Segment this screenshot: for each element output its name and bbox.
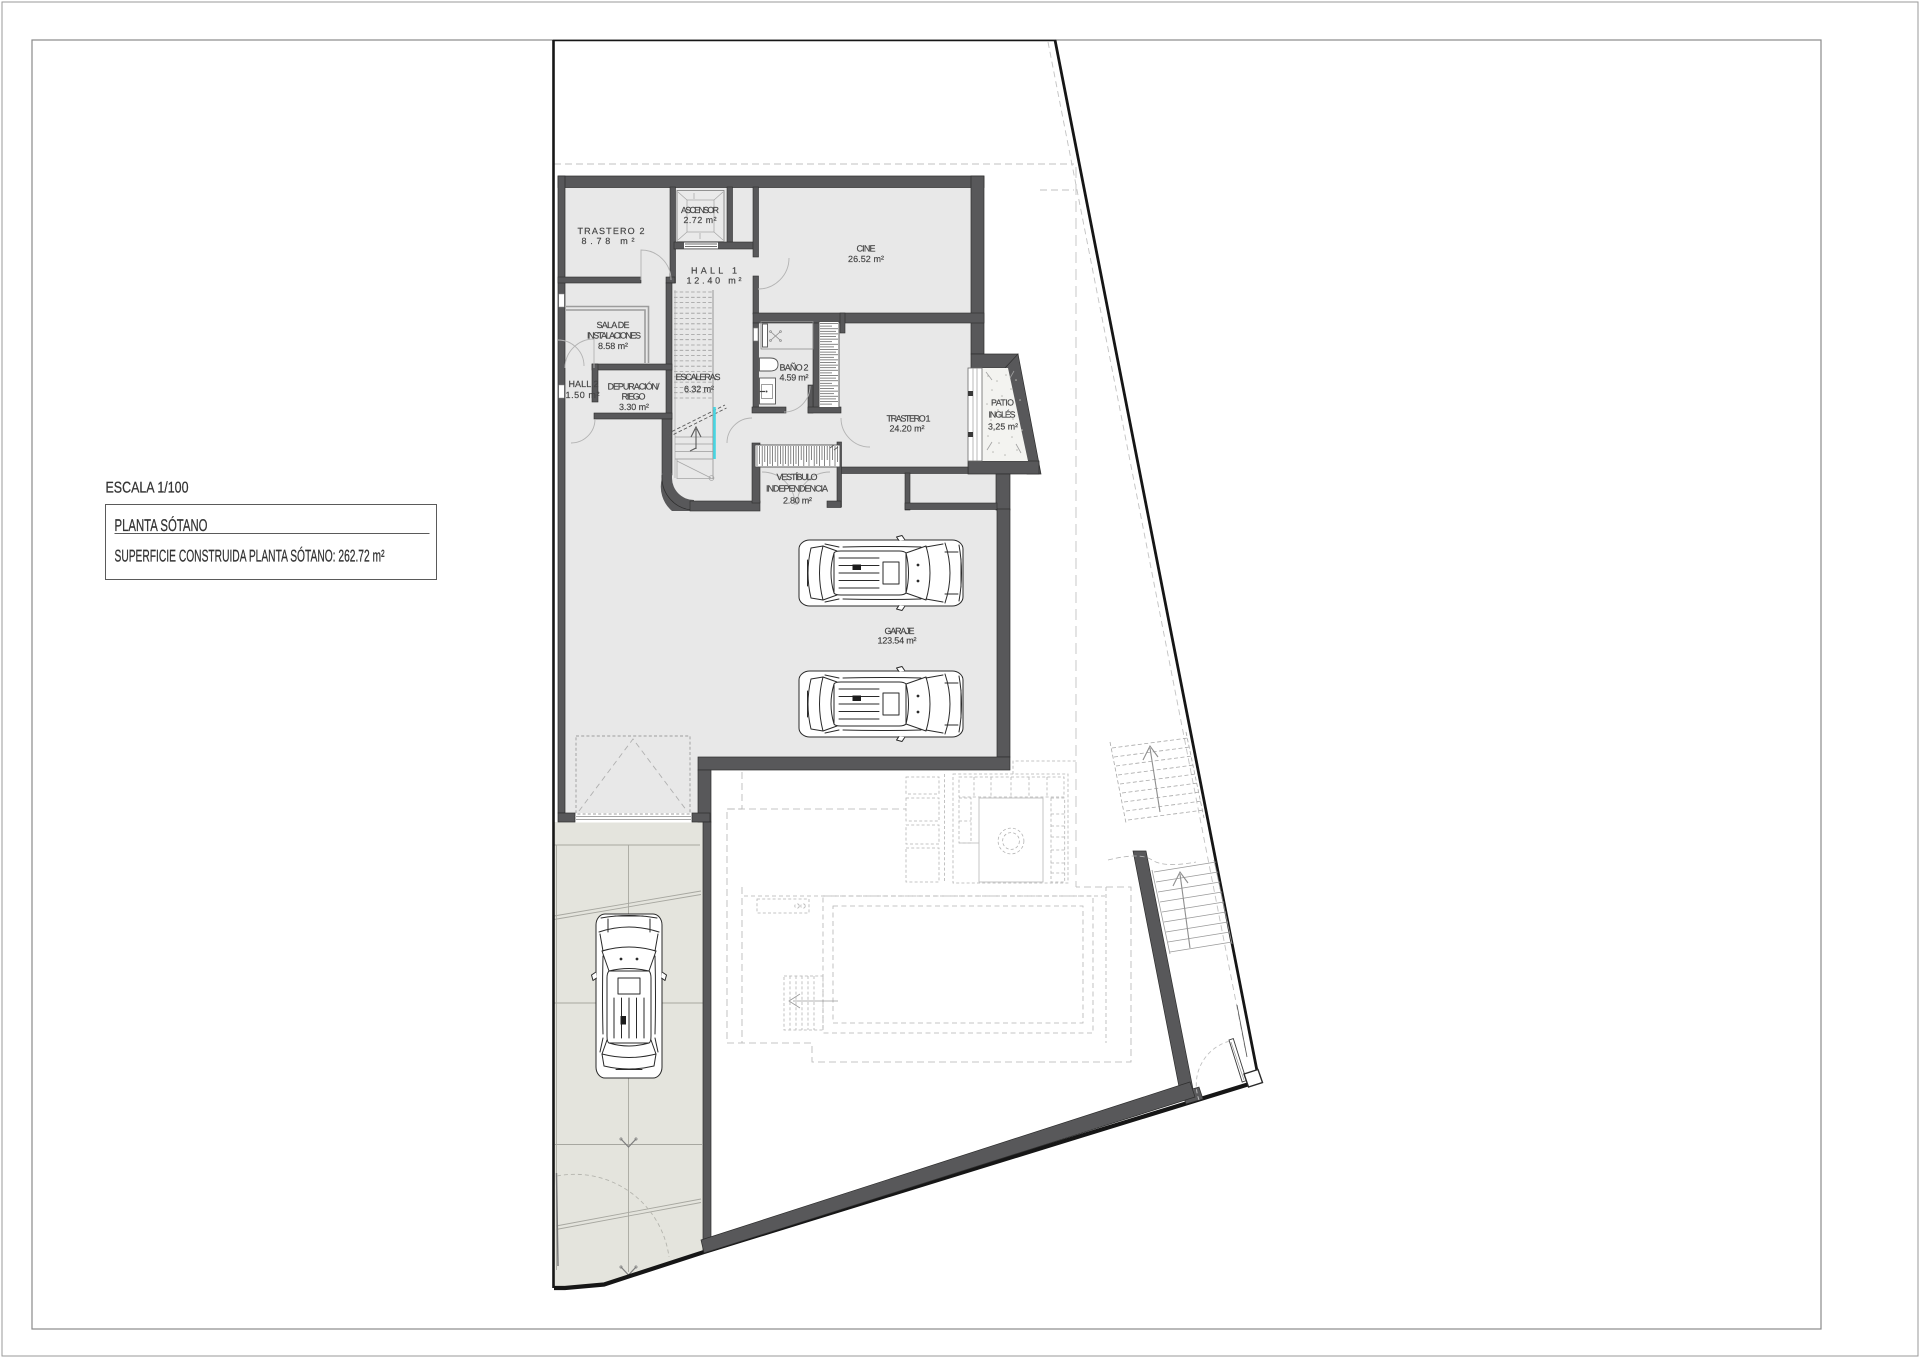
svg-text:GARAJE: GARAJE xyxy=(885,626,915,636)
svg-text:HALL 2: HALL 2 xyxy=(569,379,599,389)
svg-text:1.50 m²: 1.50 m² xyxy=(566,390,600,400)
svg-text:BAÑO 2: BAÑO 2 xyxy=(780,363,809,373)
svg-text:TRASTERO 2: TRASTERO 2 xyxy=(578,226,645,236)
svg-text:PLANTA SÓTANO: PLANTA SÓTANO xyxy=(115,516,208,535)
svg-text:2.72 m²: 2.72 m² xyxy=(684,215,717,225)
svg-text:INSTALACIONES: INSTALACIONES xyxy=(587,331,641,341)
svg-text:8.78 m²: 8.78 m² xyxy=(582,236,635,246)
svg-text:2.80 m²: 2.80 m² xyxy=(783,496,812,506)
svg-text:INGLÉS: INGLÉS xyxy=(989,410,1016,420)
svg-text:ESCALERAS: ESCALERAS xyxy=(676,372,721,382)
svg-text:3.30 m²: 3.30 m² xyxy=(619,402,649,412)
svg-text:SALA DE: SALA DE xyxy=(597,320,630,330)
svg-text:ASCENSOR: ASCENSOR xyxy=(681,205,719,215)
svg-text:8.58 m²: 8.58 m² xyxy=(598,341,628,351)
svg-text:CINE: CINE xyxy=(857,244,876,254)
svg-text:RIEGO: RIEGO xyxy=(622,392,646,402)
svg-text:INDEPENDENCIA: INDEPENDENCIA xyxy=(766,484,828,494)
svg-text:ESCALA 1/100: ESCALA 1/100 xyxy=(106,480,189,497)
svg-text:VESTÍBULO: VESTÍBULO xyxy=(777,472,818,482)
svg-text:DEPURACIÓN/: DEPURACIÓN/ xyxy=(608,382,660,392)
svg-text:4.59 m²: 4.59 m² xyxy=(780,373,809,383)
svg-text:TRASTERO 1: TRASTERO 1 xyxy=(887,414,931,424)
svg-text:123.54 m²: 123.54 m² xyxy=(878,636,917,646)
svg-text:SUPERFICIE CONSTRUIDA PLANTA S: SUPERFICIE CONSTRUIDA PLANTA SÓTANO: 262… xyxy=(115,547,385,566)
svg-text:3,25 m²: 3,25 m² xyxy=(988,422,1018,432)
svg-text:PATIO: PATIO xyxy=(991,398,1014,408)
svg-text:24.20 m²: 24.20 m² xyxy=(890,424,925,434)
svg-text:6.32 m²: 6.32 m² xyxy=(684,384,714,394)
svg-text:26.52 m²: 26.52 m² xyxy=(848,254,884,264)
